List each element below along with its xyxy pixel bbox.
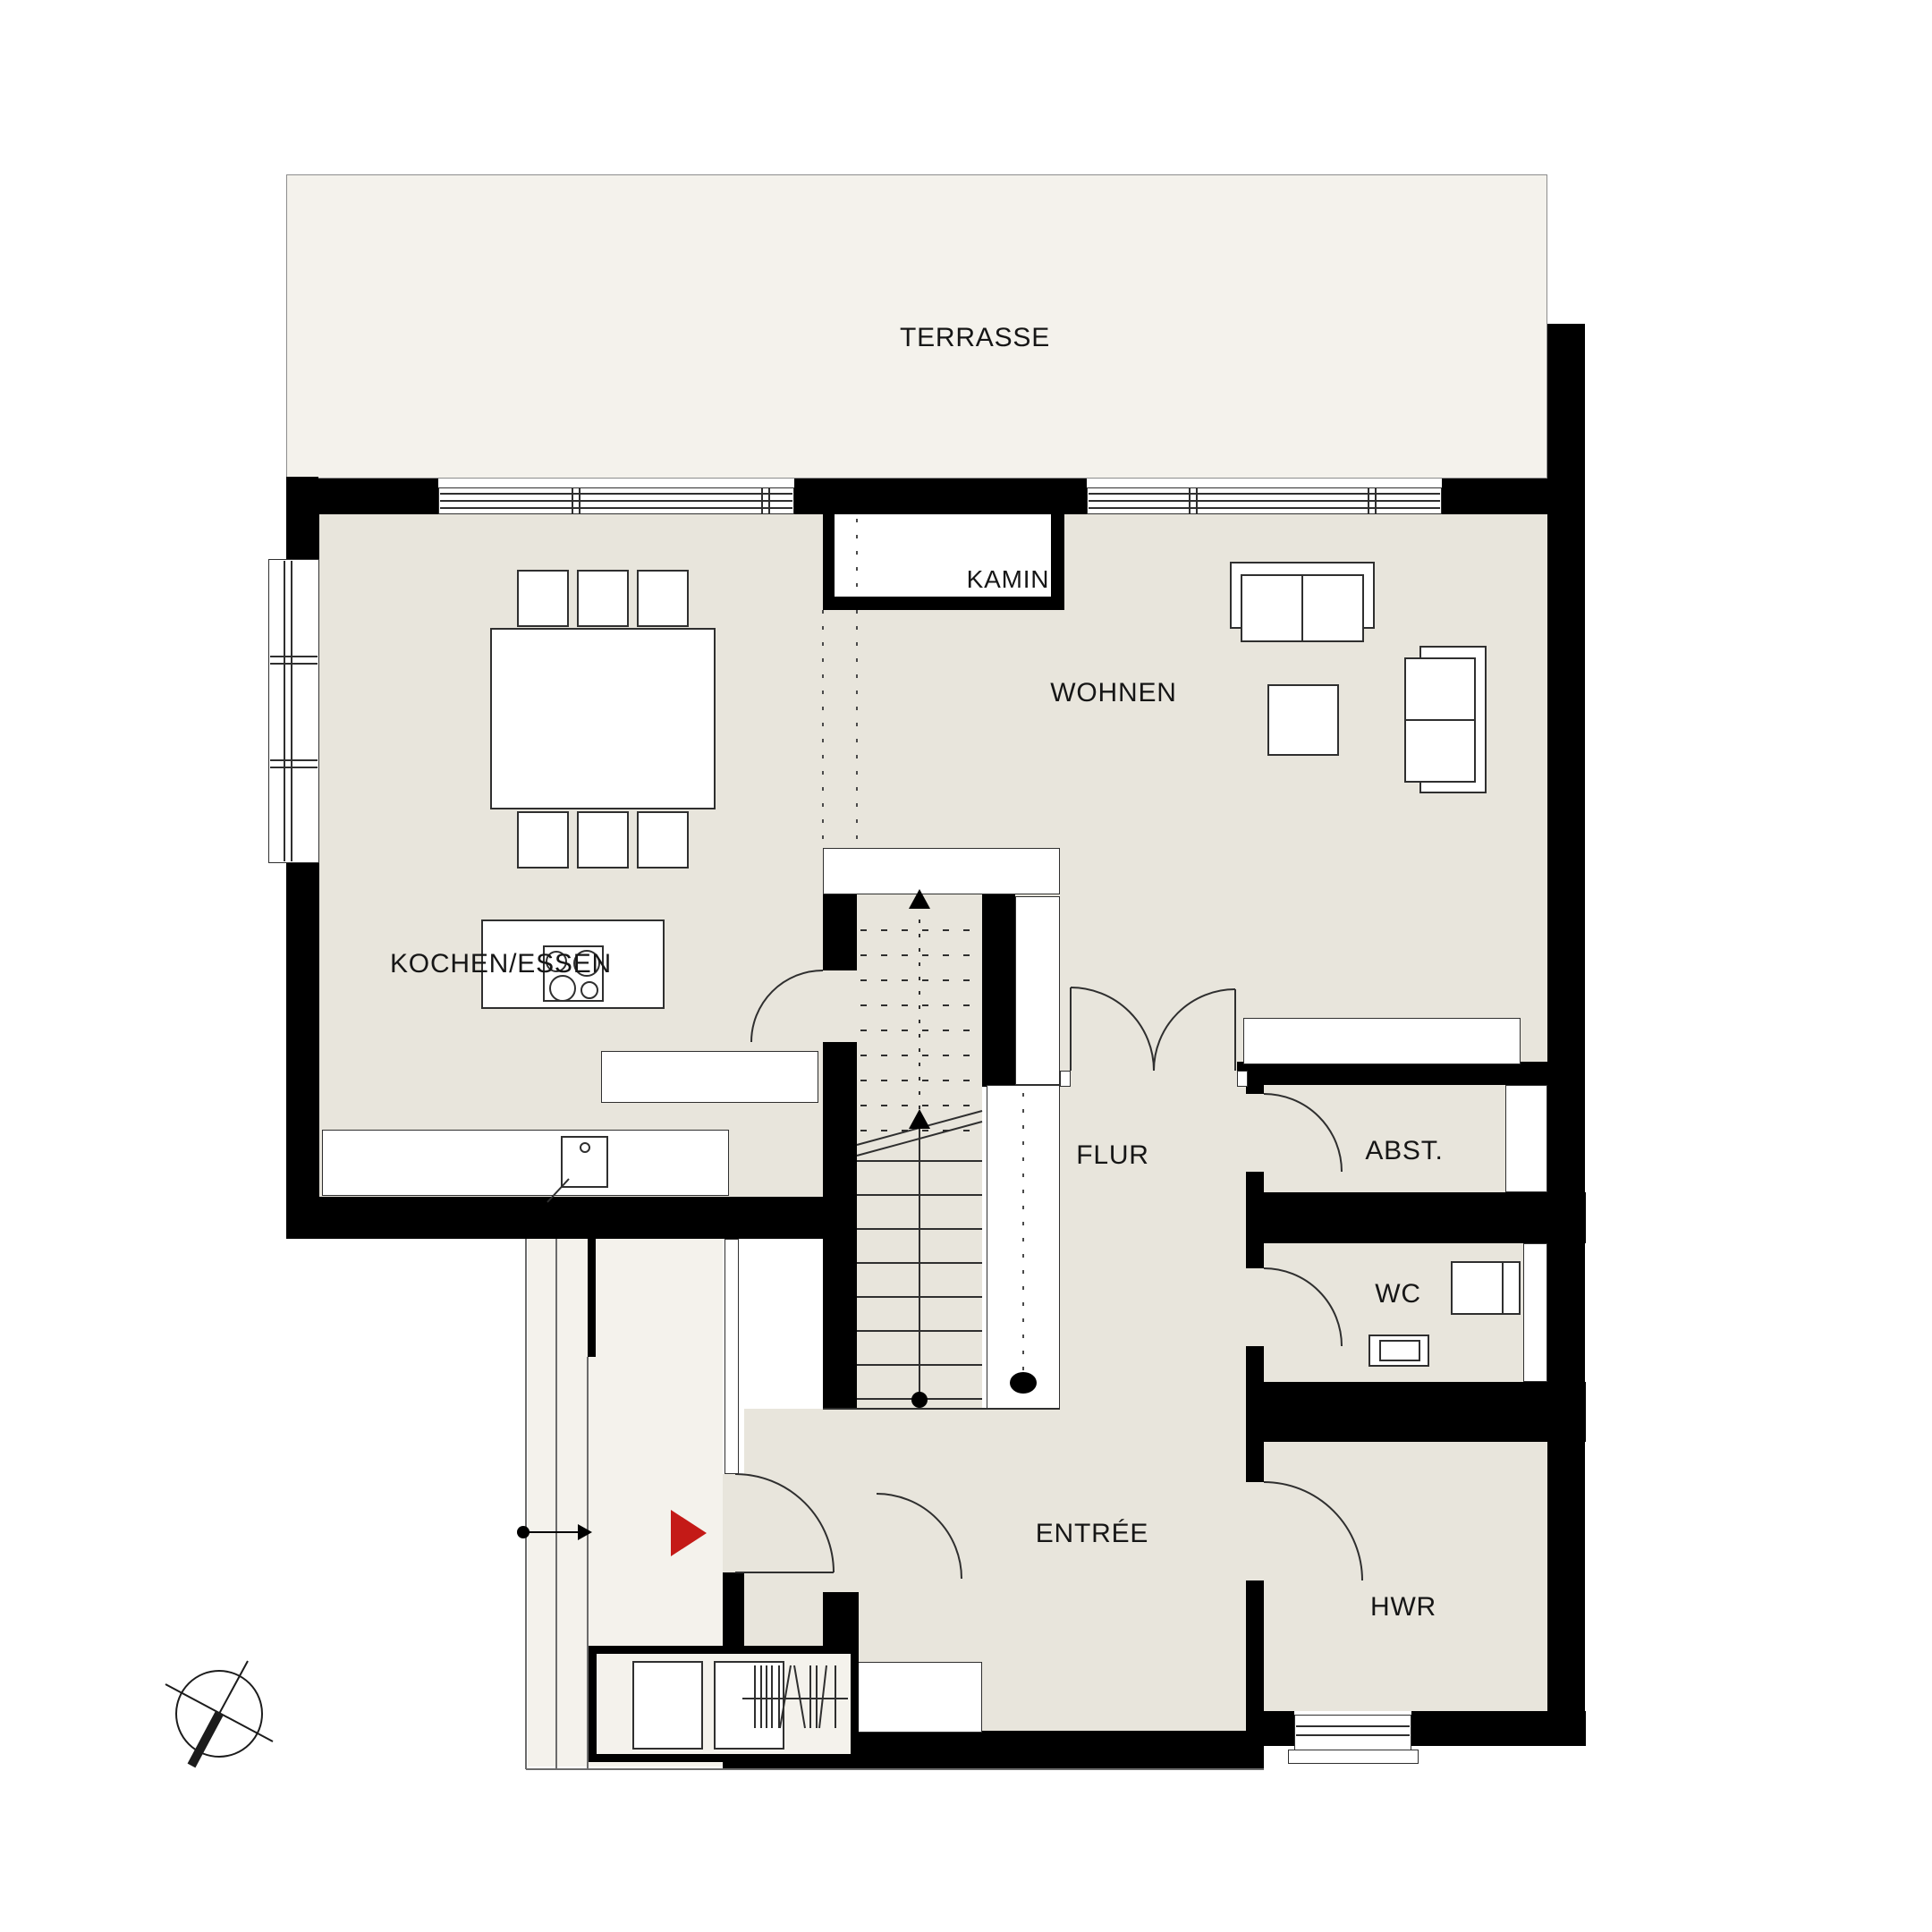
wall-porch-wing — [588, 1239, 596, 1357]
wall-hwr-south-left — [1264, 1711, 1294, 1746]
label-kamin: KAMIN — [967, 565, 1050, 594]
stair-landing-bridge — [823, 848, 1060, 894]
wall-top-segment-2 — [794, 479, 1087, 514]
wall-kitchen-south — [286, 1197, 823, 1239]
sofa-top-seat — [1241, 574, 1364, 642]
shaft-niche-wc — [1523, 1243, 1547, 1382]
wall-hall-living-right — [1237, 1062, 1547, 1085]
dining-chair — [517, 570, 569, 627]
kitchen-sink — [561, 1136, 608, 1188]
dining-chair — [577, 811, 629, 869]
dining-chair — [517, 811, 569, 869]
label-kochen-essen: KOCHEN/ESSEN — [390, 949, 612, 979]
entry-door-threshold — [723, 1474, 744, 1572]
double-door-jamb-right — [1237, 1071, 1248, 1087]
wall-top-segment-1 — [286, 479, 438, 514]
sofa-side-seat — [1404, 657, 1476, 783]
stair-void-upper — [1015, 896, 1060, 1085]
label-wohnen: WOHNEN — [1050, 678, 1176, 708]
shaft-niche-abst — [1505, 1085, 1547, 1192]
wall-top-segment-3 — [1442, 479, 1547, 514]
label-wc: WC — [1375, 1279, 1421, 1309]
north-compass-icon — [165, 1661, 273, 1766]
dining-table — [490, 628, 716, 809]
wall-abst-wc — [1246, 1192, 1586, 1243]
entry-sidelight — [724, 1239, 739, 1474]
wc-sink — [1451, 1261, 1521, 1315]
window-hwr-south — [1294, 1715, 1411, 1751]
wall-rightcol-west-a — [1246, 1085, 1264, 1094]
kitchen-door-threshold — [823, 970, 857, 1042]
wall-wc-hwr — [1246, 1382, 1586, 1442]
exterior-niche-box — [714, 1661, 784, 1750]
label-entree: ENTRÉE — [1036, 1519, 1149, 1549]
stair-void-strip — [987, 1085, 1060, 1409]
wall-east — [1547, 324, 1585, 1746]
window-north-right — [1087, 487, 1442, 514]
kitchen-counter — [322, 1130, 729, 1196]
dining-chair — [637, 811, 689, 869]
floor-plan: TERRASSE KAMIN WOHNEN KOCHEN/ESSEN FLUR … — [0, 0, 1932, 1932]
wall-rightcol-west-d — [1246, 1580, 1264, 1731]
double-door-jamb-left — [1060, 1071, 1071, 1087]
window-hwr-south-step — [1288, 1750, 1419, 1764]
wall-west-above-window — [286, 514, 319, 559]
wall-stair-west-upper — [823, 894, 857, 970]
exterior-niche-box — [632, 1661, 703, 1750]
label-abst: ABST. — [1365, 1136, 1443, 1166]
label-flur: FLUR — [1076, 1140, 1149, 1171]
utility-room-area — [1264, 1442, 1554, 1711]
wall-west-below-window — [286, 863, 319, 1239]
dining-chair — [577, 570, 629, 627]
window-west — [268, 559, 319, 863]
wall-hwr-south-right — [1411, 1711, 1586, 1746]
wall-stair-west-lower — [823, 1042, 857, 1409]
window-north-left — [438, 487, 794, 514]
label-hwr: HWR — [1370, 1592, 1436, 1623]
living-sideboard — [1243, 1018, 1521, 1064]
kitchen-sideboard — [601, 1051, 818, 1103]
dining-chair — [637, 570, 689, 627]
wc-toilet-bowl — [1379, 1340, 1420, 1361]
entry-bench — [845, 1662, 982, 1733]
coffee-table — [1267, 684, 1339, 756]
wall-stair-east — [982, 894, 1015, 1085]
label-terrasse: TERRASSE — [900, 323, 1050, 353]
